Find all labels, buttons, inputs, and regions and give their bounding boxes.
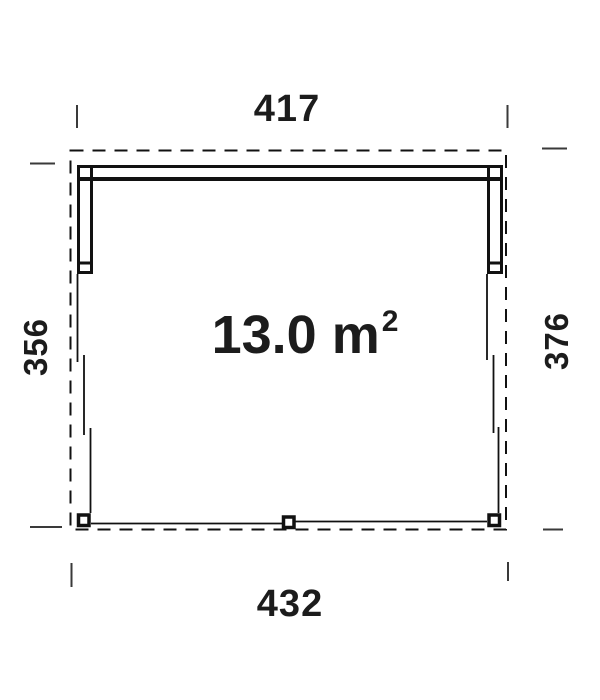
- side-wall-right: [487, 274, 499, 513]
- corner-post-right: [487, 167, 503, 273]
- post-marker-right: [489, 515, 500, 526]
- floor-area-value: 13.0 m: [212, 305, 380, 365]
- floor-area-superscript: 2: [382, 305, 399, 338]
- dimension-label-top: 417: [207, 90, 367, 128]
- floor-area-label: 13.0 m2: [155, 308, 455, 362]
- corner-post-left: [77, 167, 93, 273]
- post-marker-left: [79, 515, 90, 526]
- post-marker-center: [284, 517, 295, 528]
- corner-post-left-outline: [79, 167, 92, 273]
- top-beam: [77, 167, 503, 180]
- corner-post-right-outline: [489, 167, 502, 273]
- dimension-label-right: 376: [538, 263, 574, 419]
- dimension-label-left: 356: [17, 269, 53, 425]
- floor-plan-canvas: 417 432 356 376 13.0 m2: [0, 0, 600, 700]
- side-wall-left: [78, 274, 91, 513]
- dimension-label-bottom: 432: [210, 585, 370, 623]
